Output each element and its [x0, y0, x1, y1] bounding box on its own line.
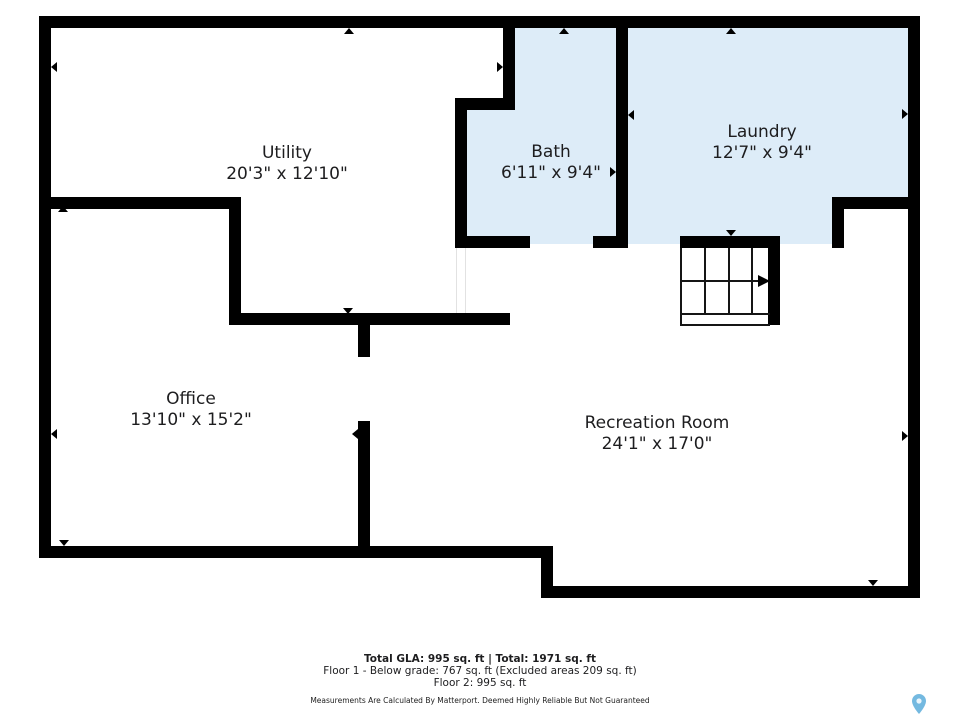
stairs-direction-line [682, 280, 760, 282]
measurement-arrow [868, 580, 878, 586]
staircase [680, 248, 770, 326]
room-label-laundry: Laundry 12'7" x 9'4" [712, 122, 812, 164]
floorplan-canvas: Utility 20'3" x 12'10" Bath 6'11" x 9'4"… [0, 0, 960, 720]
room-label-office: Office 13'10" x 15'2" [130, 389, 252, 431]
measurement-arrow [902, 431, 908, 441]
measurement-arrow [559, 28, 569, 34]
room-dimensions: 24'1" x 17'0" [585, 434, 730, 455]
measurement-arrow [461, 167, 467, 177]
measurement-arrow [364, 432, 370, 442]
measurement-arrow [726, 28, 736, 34]
wall-utility-vertical [229, 197, 241, 325]
room-dimensions: 12'7" x 9'4" [712, 143, 812, 164]
room-name: Laundry [712, 122, 812, 143]
footer-floor1-area: Floor 1 - Below grade: 767 sq. ft (Exclu… [0, 665, 960, 677]
wall-office-divider-upper [358, 325, 370, 357]
wall-utility-bottom [39, 197, 241, 209]
measurement-arrow [628, 110, 634, 120]
room-dimensions: 6'11" x 9'4" [501, 163, 601, 184]
wall-exterior-bottom-right [541, 586, 920, 598]
wall-exterior-bottom-left [39, 546, 553, 558]
measurement-arrow [868, 203, 878, 209]
measurement-arrow [58, 206, 68, 212]
room-name: Utility [226, 143, 348, 164]
room-dimensions: 20'3" x 12'10" [226, 164, 348, 185]
room-label-recreation-room: Recreation Room 24'1" x 17'0" [585, 413, 730, 455]
measurement-arrow [352, 429, 358, 439]
open-doorway-line [456, 248, 466, 313]
wall-mid-horizontal [229, 313, 510, 325]
measurement-arrow [726, 230, 736, 236]
measurement-arrow [51, 62, 57, 72]
wall-bath-bottom-a [455, 236, 530, 248]
room-name: Bath [501, 142, 601, 163]
measurement-arrow [51, 429, 57, 439]
footer-total-area: Total GLA: 995 sq. ft | Total: 1971 sq. … [0, 653, 960, 665]
footer-floor2-area: Floor 2: 995 sq. ft [0, 677, 960, 689]
bath-floor-highlight [509, 22, 619, 114]
room-label-utility: Utility 20'3" x 12'10" [226, 143, 348, 185]
wall-bath-upper-left [503, 16, 515, 110]
wall-laundry-notch-vertical [832, 197, 844, 248]
measurement-arrow [497, 62, 503, 72]
laundry-floor-highlight [622, 22, 914, 203]
wall-bath-laundry-divider [616, 16, 628, 248]
footer-disclaimer: Measurements Are Calculated By Matterpor… [0, 696, 960, 705]
stair-landing-line [682, 313, 770, 315]
wall-exterior-left [39, 16, 51, 558]
room-name: Office [130, 389, 252, 410]
stairs-direction-arrow-icon [758, 275, 770, 287]
measurement-arrow [343, 308, 353, 314]
measurement-arrow [902, 109, 908, 119]
measurement-arrow [610, 167, 616, 177]
location-pin-icon [912, 694, 926, 714]
room-dimensions: 13'10" x 15'2" [130, 410, 252, 431]
wall-exterior-top [39, 16, 920, 28]
measurement-arrow [59, 540, 69, 546]
room-name: Recreation Room [585, 413, 730, 434]
measurement-arrow [344, 28, 354, 34]
room-label-bath: Bath 6'11" x 9'4" [501, 142, 601, 184]
wall-stairs-top [680, 236, 780, 248]
wall-exterior-right [908, 16, 920, 598]
